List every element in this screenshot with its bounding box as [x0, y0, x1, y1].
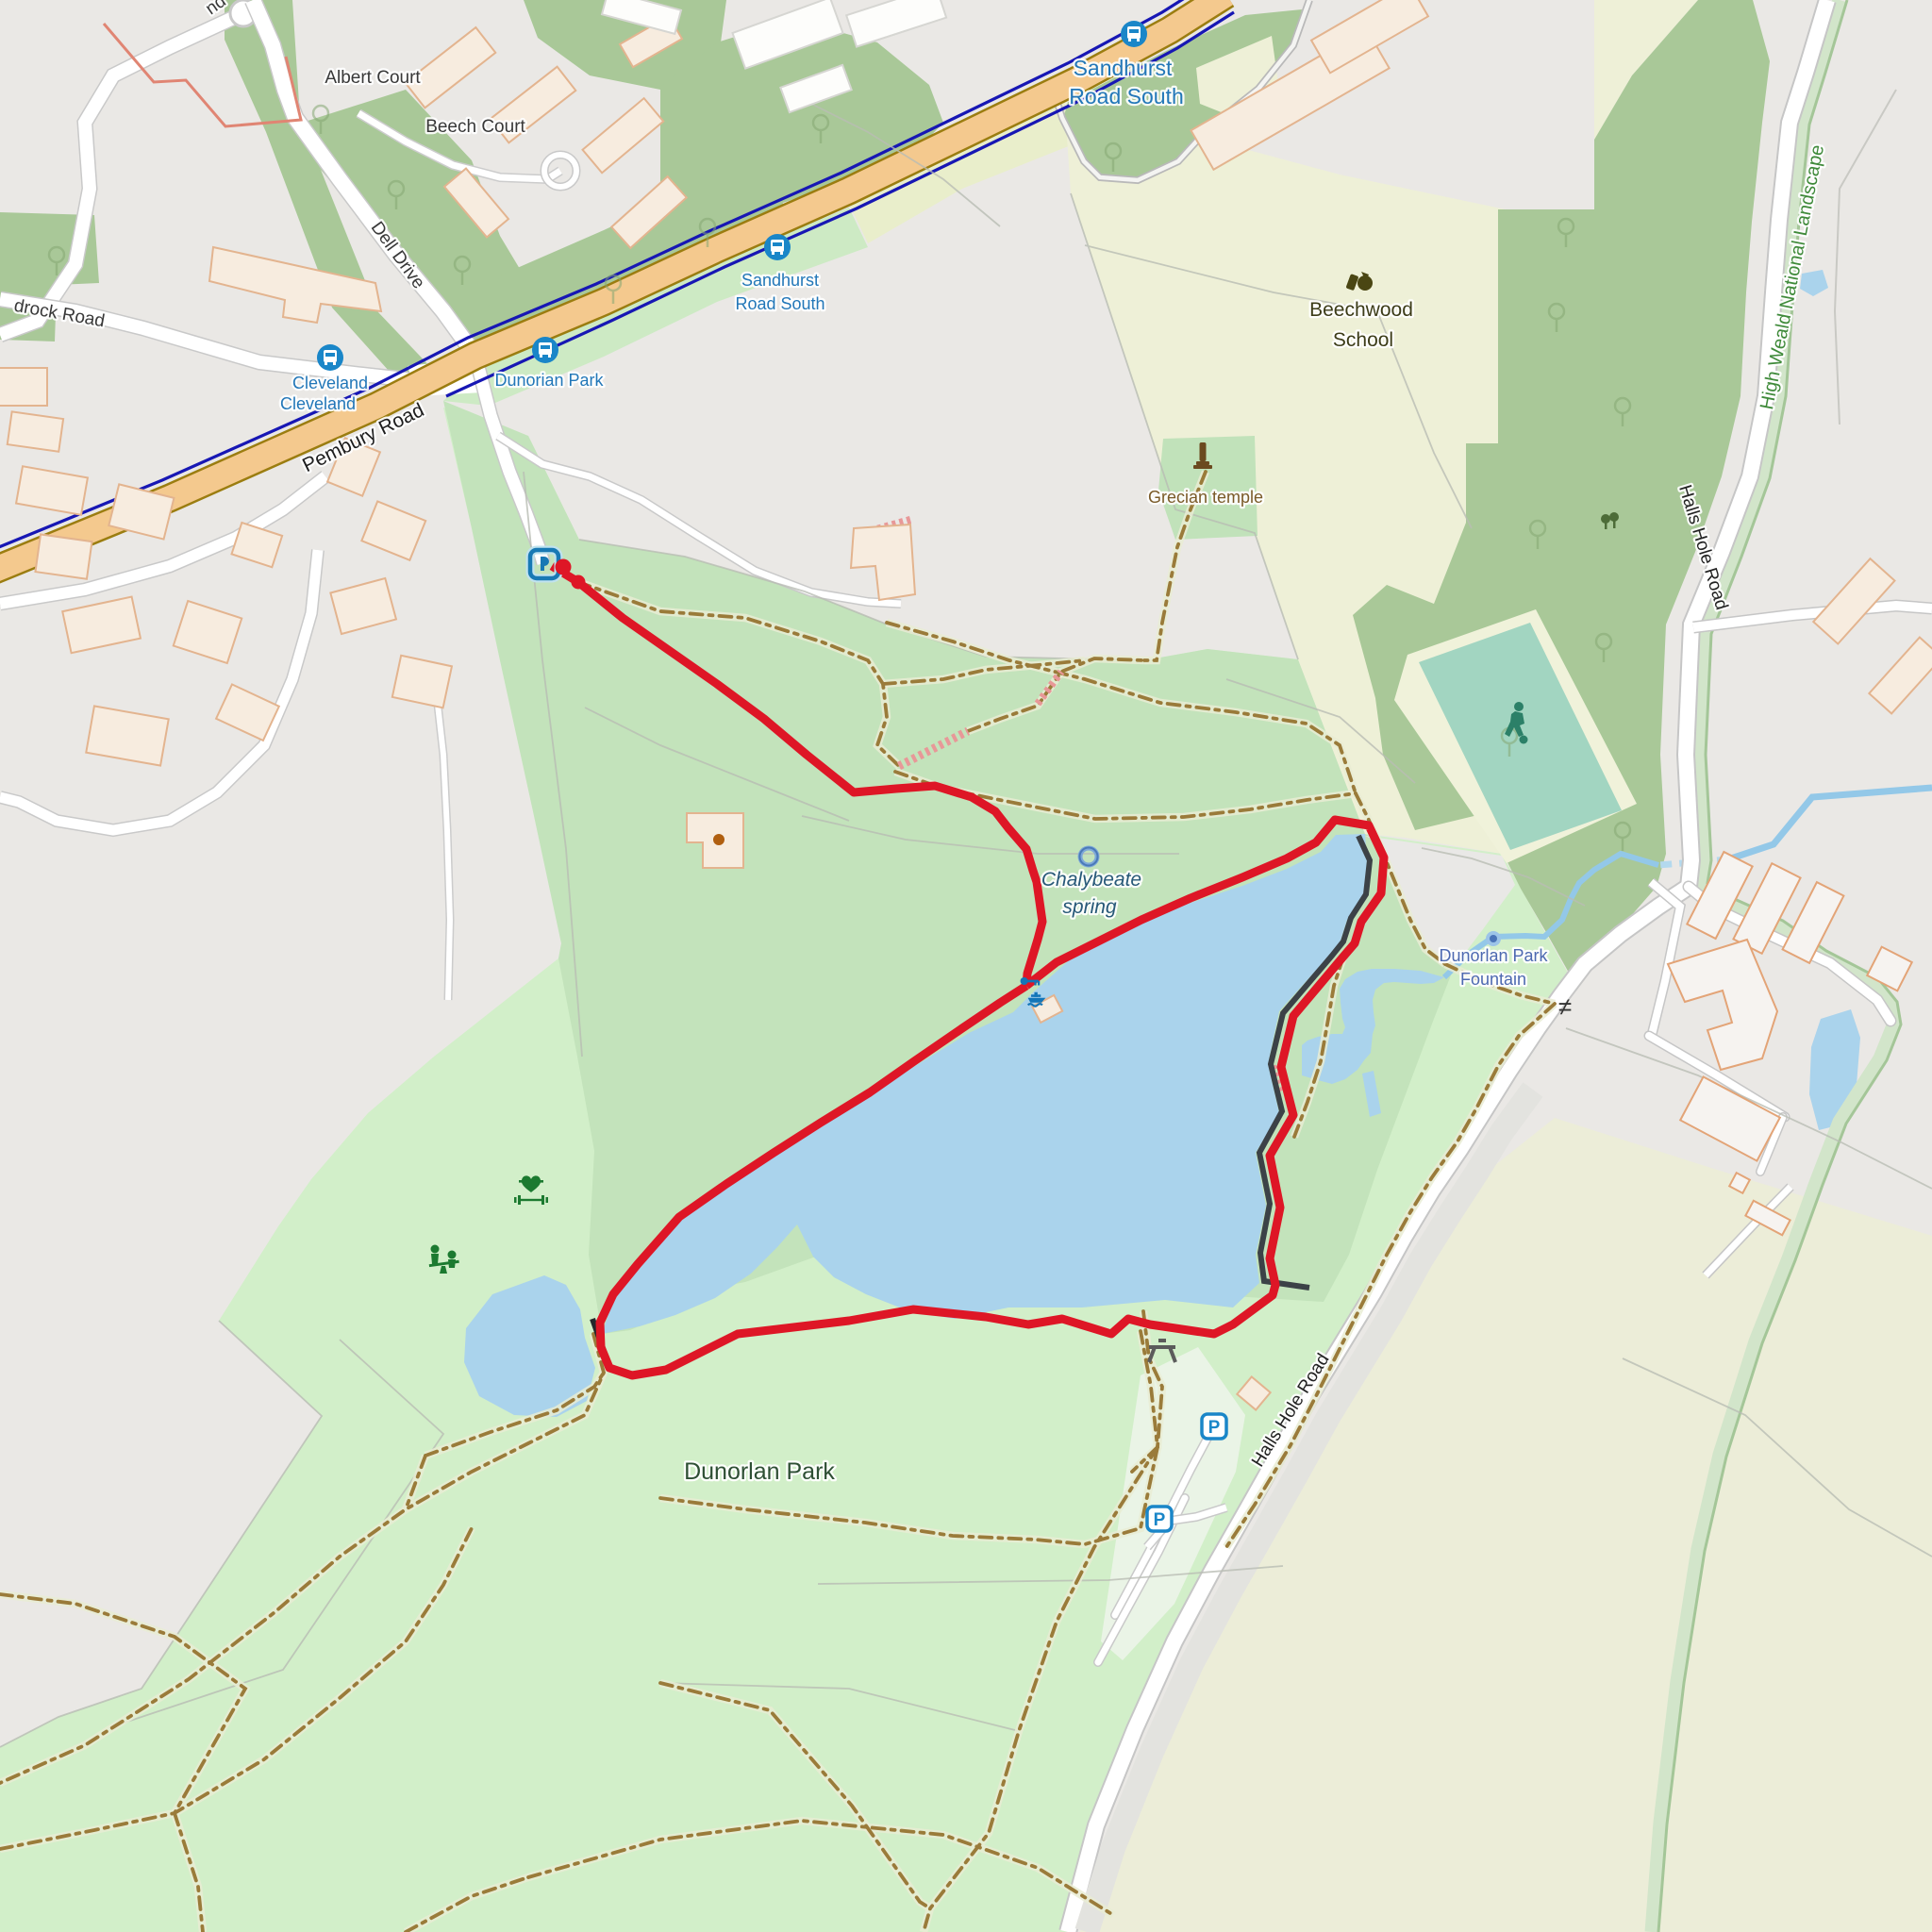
- svg-text:P: P: [1154, 1510, 1166, 1530]
- svg-text:Dunorlan Park: Dunorlan Park: [684, 1458, 835, 1485]
- svg-text:Beechwood: Beechwood: [1309, 299, 1413, 321]
- svg-text:Dunorlan Park: Dunorlan Park: [1439, 946, 1548, 965]
- svg-text:Albert Court: Albert Court: [325, 68, 421, 88]
- svg-text:Cleveland: Cleveland: [280, 394, 356, 413]
- svg-text:Cleveland: Cleveland: [292, 374, 368, 392]
- svg-text:Beech Court: Beech Court: [425, 117, 525, 137]
- svg-text:spring: spring: [1062, 896, 1117, 918]
- svg-text:Road South: Road South: [735, 294, 824, 313]
- svg-text:Sandhurst: Sandhurst: [1074, 56, 1173, 80]
- svg-text:School: School: [1333, 329, 1393, 351]
- svg-text:≠: ≠: [1558, 992, 1572, 1021]
- svg-text:Fountain: Fountain: [1460, 970, 1526, 989]
- svg-text:Road South: Road South: [1069, 84, 1183, 108]
- svg-text:Chalybeate: Chalybeate: [1041, 869, 1141, 891]
- svg-text:P: P: [1208, 1418, 1221, 1438]
- svg-text:Sandhurst: Sandhurst: [741, 271, 819, 290]
- svg-text:Dunorian Park: Dunorian Park: [494, 371, 604, 390]
- svg-text:Grecian temple: Grecian temple: [1148, 488, 1263, 507]
